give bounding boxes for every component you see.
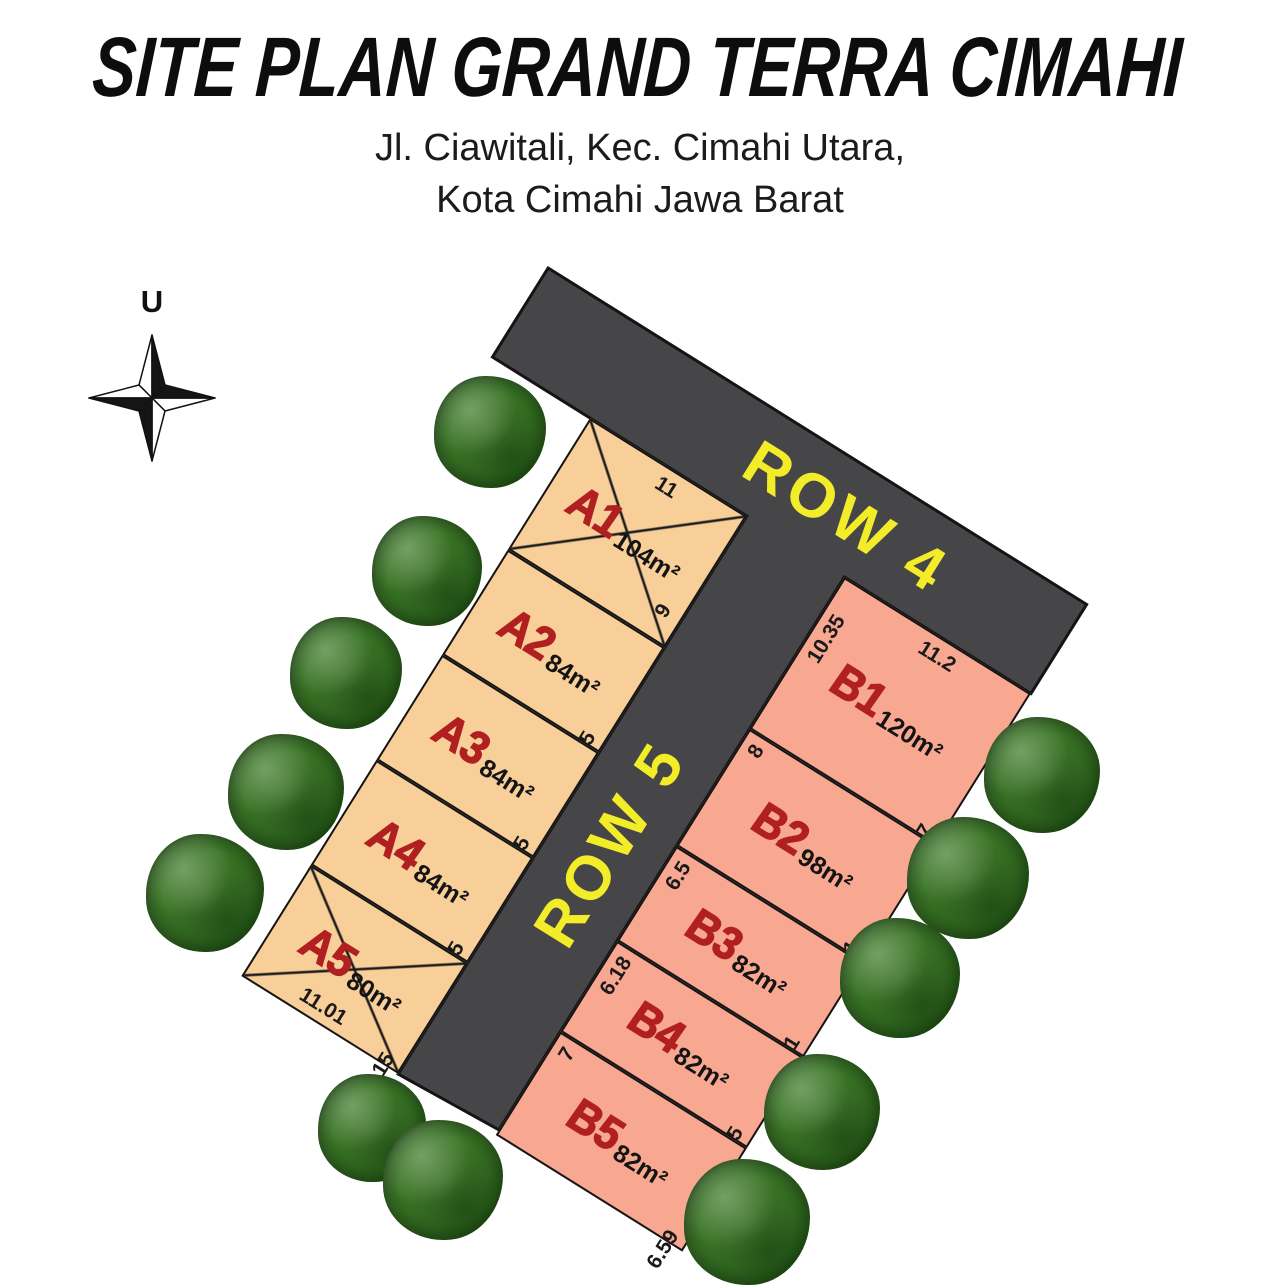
dim-label: 8: [743, 740, 770, 763]
lot-code: B3: [676, 899, 753, 972]
tree: [228, 734, 344, 850]
address-line-2: Kota Cimahi Jawa Barat: [0, 174, 1280, 226]
lot-area: 84m²: [474, 753, 539, 809]
tree: [372, 516, 482, 626]
tree: [840, 918, 960, 1038]
page-title: SITE PLAN GRAND TERRA CIMAHI: [0, 18, 1280, 116]
dim-label: 6.5: [661, 857, 697, 894]
lot-code: A3: [423, 704, 500, 777]
dim-label: 9: [650, 600, 677, 623]
lot-area: 80m²: [341, 966, 406, 1022]
lot-area: 82m²: [726, 949, 791, 1005]
tree: [290, 617, 402, 729]
lot-area: 82m²: [608, 1138, 673, 1194]
compass-rose-icon: [82, 328, 222, 468]
lot-code: A1: [557, 476, 634, 549]
dim-label: 11.01: [295, 983, 351, 1031]
lot-code: B5: [557, 1089, 634, 1162]
tree: [434, 376, 546, 488]
tree: [764, 1054, 880, 1170]
lot-area: 104m²: [608, 526, 685, 589]
compass-north-label: U: [82, 284, 222, 320]
tree: [146, 834, 264, 952]
lot-area: 98m²: [793, 843, 858, 899]
lot-code: A5: [290, 917, 367, 990]
lot-area: 120m²: [871, 704, 948, 767]
tree: [984, 717, 1100, 833]
lot-code: A4: [358, 809, 435, 882]
lot-area: 82m²: [668, 1041, 733, 1097]
tree: [907, 817, 1029, 939]
tree: [684, 1159, 810, 1285]
dim-label: 11: [650, 472, 682, 504]
address-line-1: Jl. Ciawitali, Kec. Cimahi Utara,: [0, 122, 1280, 174]
address-subtitle: Jl. Ciawitali, Kec. Cimahi Utara, Kota C…: [0, 122, 1280, 227]
dim-label: 6.59: [642, 1226, 684, 1273]
lot-area: 84m²: [540, 648, 605, 704]
dim-label: 7: [554, 1043, 581, 1066]
lot-code: A2: [489, 598, 566, 671]
lot-code: B1: [820, 655, 897, 728]
lot-code: B2: [742, 793, 819, 866]
tree: [383, 1120, 503, 1240]
lot-area: 84m²: [408, 858, 473, 914]
lot-code: B4: [618, 992, 695, 1065]
